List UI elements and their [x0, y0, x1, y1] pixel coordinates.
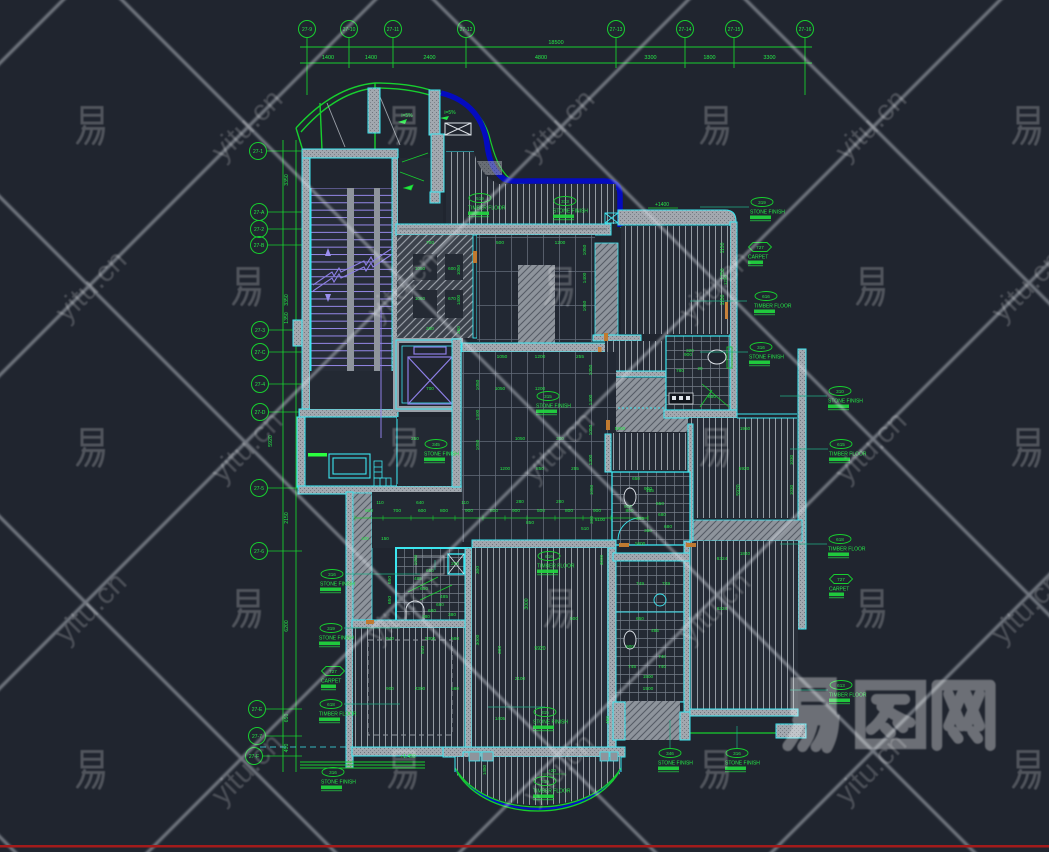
- svg-text:STONE FINISH: STONE FINISH: [320, 582, 355, 588]
- svg-text:1500: 1500: [643, 686, 654, 692]
- svg-text:615: 615: [837, 442, 845, 447]
- svg-text:27-5: 27-5: [254, 486, 264, 492]
- svg-text:1200: 1200: [500, 466, 511, 471]
- svg-text:315: 315: [544, 394, 552, 399]
- svg-text:27-6: 27-6: [254, 549, 264, 555]
- svg-text:900: 900: [465, 508, 473, 514]
- svg-text:650: 650: [632, 476, 640, 481]
- svg-text:300: 300: [497, 646, 503, 654]
- svg-text:TIMBER FLOOR: TIMBER FLOOR: [537, 564, 575, 570]
- svg-text:1050: 1050: [589, 484, 594, 495]
- svg-text:2300: 2300: [415, 686, 426, 691]
- svg-text:618: 618: [836, 537, 844, 542]
- svg-text:800: 800: [440, 508, 448, 514]
- svg-text:1400: 1400: [475, 409, 481, 420]
- svg-text:460: 460: [605, 716, 610, 724]
- svg-text:1200: 1200: [535, 354, 546, 360]
- svg-text:18500: 18500: [548, 40, 563, 46]
- svg-text:650: 650: [656, 501, 664, 507]
- svg-text:27-2: 27-2: [254, 227, 264, 233]
- svg-text:316: 316: [329, 770, 337, 775]
- svg-text:1400: 1400: [582, 272, 588, 283]
- svg-text:2150: 2150: [284, 512, 290, 524]
- svg-text:316: 316: [328, 572, 336, 577]
- svg-text:27-1: 27-1: [253, 149, 263, 155]
- svg-text:1050: 1050: [582, 300, 588, 311]
- svg-text:313: 313: [561, 199, 569, 204]
- svg-text:1050: 1050: [475, 379, 481, 390]
- svg-text:2400: 2400: [423, 55, 435, 61]
- svg-text:27-A: 27-A: [254, 210, 265, 216]
- svg-text:740: 740: [658, 664, 666, 670]
- svg-text:727: 727: [837, 577, 845, 582]
- svg-text:6324: 6324: [717, 556, 728, 562]
- svg-text:CARPET: CARPET: [748, 255, 768, 261]
- svg-text:300: 300: [589, 516, 594, 524]
- svg-text:260: 260: [426, 326, 434, 331]
- svg-text:850: 850: [526, 520, 534, 526]
- svg-text:5100: 5100: [595, 517, 606, 522]
- svg-text:TIMBER FLOOR: TIMBER FLOOR: [319, 712, 357, 718]
- svg-text:27-4: 27-4: [255, 382, 265, 388]
- svg-text:4800: 4800: [535, 55, 547, 61]
- svg-text:300: 300: [475, 566, 481, 574]
- svg-text:485: 485: [646, 488, 654, 493]
- svg-text:STONE FINISH: STONE FINISH: [658, 761, 693, 767]
- svg-text:700: 700: [426, 240, 434, 246]
- svg-text:280: 280: [516, 499, 524, 504]
- svg-text:STONE FINISH: STONE FINISH: [533, 720, 568, 726]
- svg-text:316: 316: [733, 751, 741, 756]
- svg-text:1050: 1050: [475, 439, 481, 450]
- svg-text:560: 560: [451, 636, 459, 642]
- svg-text:500: 500: [537, 508, 545, 514]
- svg-text:2100: 2100: [515, 676, 526, 681]
- svg-text:1350: 1350: [284, 312, 290, 324]
- svg-text:202: 202: [451, 561, 459, 566]
- svg-text:6200: 6200: [284, 620, 290, 632]
- svg-text:315: 315: [541, 710, 549, 715]
- svg-text:150: 150: [381, 536, 389, 541]
- svg-text:+1400: +1400: [655, 202, 669, 208]
- svg-text:27-9: 27-9: [302, 27, 312, 33]
- svg-text:900: 900: [386, 686, 394, 691]
- svg-text:1405: 1405: [495, 716, 506, 721]
- svg-text:STONE FINISH: STONE FINISH: [321, 780, 356, 786]
- svg-text:1050: 1050: [497, 354, 508, 360]
- svg-text:1050: 1050: [515, 436, 526, 441]
- svg-text:1500: 1500: [643, 674, 654, 679]
- svg-text:800: 800: [565, 508, 573, 514]
- svg-text:1050: 1050: [495, 386, 506, 391]
- svg-text:850: 850: [708, 394, 716, 400]
- svg-text:485: 485: [440, 594, 448, 600]
- svg-text:1480: 1480: [482, 764, 487, 775]
- svg-text:319: 319: [758, 200, 766, 205]
- svg-text:900: 900: [512, 508, 520, 514]
- svg-text:STONE FINISH: STONE FINISH: [536, 404, 571, 410]
- svg-text:680: 680: [664, 524, 672, 530]
- svg-text:680: 680: [658, 512, 666, 517]
- svg-text:640: 640: [416, 500, 424, 505]
- svg-text:5920: 5920: [736, 484, 742, 495]
- svg-text:27-11: 27-11: [387, 27, 400, 33]
- svg-text:500: 500: [496, 240, 504, 246]
- svg-text:3300: 3300: [763, 55, 775, 61]
- svg-text:727: 727: [756, 245, 764, 250]
- svg-text:749: 749: [636, 581, 644, 587]
- svg-text:519: 519: [476, 196, 484, 201]
- svg-text:380: 380: [448, 612, 456, 618]
- svg-text:27-3: 27-3: [255, 328, 265, 334]
- svg-text:3300: 3300: [644, 55, 656, 61]
- svg-text:800: 800: [365, 508, 373, 514]
- svg-text:20: 20: [697, 366, 703, 371]
- svg-text:616: 616: [762, 294, 770, 299]
- svg-text:3000: 3000: [599, 554, 604, 565]
- svg-text:STONE FINISH: STONE FINISH: [424, 452, 459, 458]
- svg-text:1400: 1400: [588, 394, 594, 405]
- svg-text:110: 110: [376, 500, 384, 505]
- svg-text:3350: 3350: [284, 294, 290, 306]
- svg-text:TIMBER FLOOR: TIMBER FLOOR: [754, 304, 792, 310]
- svg-text:1400: 1400: [365, 55, 377, 61]
- svg-text:1200: 1200: [555, 240, 566, 246]
- svg-text:680: 680: [436, 602, 444, 607]
- svg-text:650: 650: [636, 616, 644, 621]
- svg-text:255: 255: [571, 466, 579, 471]
- svg-text:STONE FINISH: STONE FINISH: [319, 636, 354, 642]
- svg-text:i=5%: i=5%: [444, 110, 456, 116]
- svg-text:STONE FINISH: STONE FINISH: [749, 355, 784, 361]
- svg-text:27-13: 27-13: [610, 27, 623, 33]
- svg-text:320: 320: [686, 348, 694, 353]
- svg-text:780: 780: [676, 368, 684, 374]
- svg-text:510: 510: [581, 526, 589, 531]
- svg-text:TIMBER FLOOR: TIMBER FLOOR: [468, 206, 506, 212]
- svg-text:560: 560: [451, 686, 459, 691]
- svg-text:110: 110: [461, 500, 469, 505]
- svg-text:613: 613: [837, 683, 845, 688]
- svg-text:27-15: 27-15: [728, 27, 741, 33]
- svg-text:316: 316: [757, 345, 765, 350]
- svg-text:1400: 1400: [322, 55, 334, 61]
- svg-text:1050: 1050: [582, 244, 588, 255]
- svg-text:616: 616: [545, 554, 553, 559]
- svg-text:27-16: 27-16: [799, 27, 812, 33]
- svg-text:TIMBER FLOOR: TIMBER FLOOR: [828, 547, 866, 553]
- svg-text:3000: 3000: [524, 598, 530, 609]
- svg-text:255: 255: [576, 354, 584, 360]
- svg-text:2300: 2300: [425, 636, 436, 642]
- svg-text:27-E: 27-E: [252, 707, 263, 713]
- svg-text:1950: 1950: [740, 426, 751, 431]
- svg-text:1400: 1400: [456, 294, 461, 305]
- svg-text:STONE FINISH: STONE FINISH: [553, 209, 588, 215]
- svg-text:319: 319: [327, 626, 335, 631]
- svg-text:CARPET: CARPET: [321, 679, 341, 685]
- svg-text:280: 280: [556, 499, 564, 504]
- svg-text:700: 700: [426, 386, 434, 391]
- svg-text:27-C: 27-C: [255, 350, 266, 356]
- svg-text:700: 700: [393, 508, 401, 514]
- svg-text:346: 346: [666, 751, 674, 756]
- svg-text:1050: 1050: [456, 264, 461, 275]
- svg-text:STONE FINISH: STONE FINISH: [725, 761, 760, 767]
- svg-text:3350: 3350: [284, 174, 290, 186]
- svg-text:749: 749: [662, 581, 670, 587]
- svg-text:345: 345: [432, 442, 440, 447]
- svg-text:1030: 1030: [789, 484, 794, 495]
- svg-text:310: 310: [836, 389, 844, 394]
- svg-text:600: 600: [418, 508, 426, 514]
- svg-text:CARPET: CARPET: [829, 587, 849, 593]
- svg-text:485: 485: [651, 628, 659, 633]
- svg-text:1800: 1800: [703, 55, 715, 61]
- svg-text:1840: 1840: [740, 551, 751, 556]
- svg-text:5900: 5900: [615, 426, 626, 432]
- svg-text:400: 400: [361, 536, 369, 541]
- svg-text:27-14: 27-14: [679, 27, 692, 33]
- svg-text:900: 900: [626, 644, 634, 649]
- svg-text:27-B: 27-B: [254, 243, 265, 249]
- svg-text:1300: 1300: [588, 454, 594, 465]
- svg-text:5920: 5920: [739, 466, 750, 472]
- svg-text:STONE FINISH: STONE FINISH: [750, 210, 785, 216]
- svg-text:745: 745: [628, 664, 636, 670]
- svg-text:618: 618: [327, 702, 335, 707]
- svg-text:1600: 1600: [635, 541, 646, 547]
- svg-text:1200: 1200: [535, 386, 546, 391]
- svg-text:1050: 1050: [413, 554, 419, 565]
- svg-text:1030: 1030: [789, 454, 794, 465]
- svg-text:5920: 5920: [534, 646, 545, 652]
- svg-text:940: 940: [420, 646, 426, 654]
- svg-text:1050: 1050: [588, 364, 594, 375]
- svg-text:900: 900: [593, 508, 601, 514]
- svg-text:3000: 3000: [475, 634, 481, 645]
